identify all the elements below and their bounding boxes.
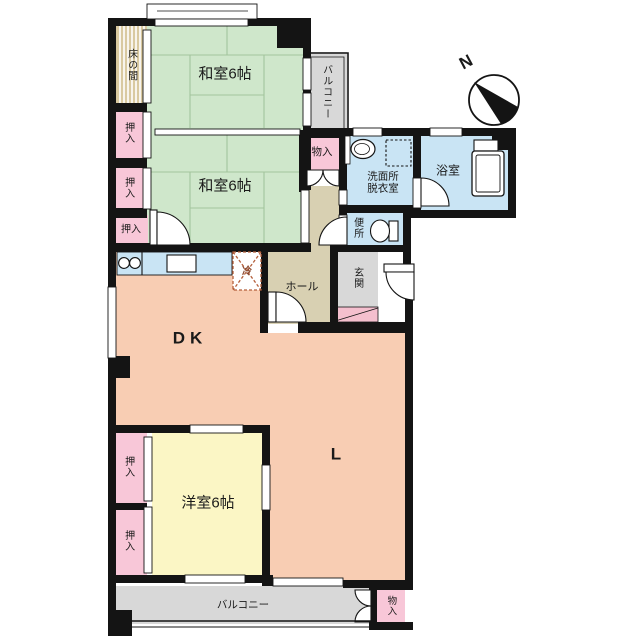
yoshitsu-label: 洋室6帖 [181, 496, 234, 513]
vanity-counter-icon [345, 136, 350, 164]
hall-label: ホール [286, 281, 319, 293]
entrance-door-leaf [384, 264, 414, 272]
fusuma-washitsu-hall [301, 190, 309, 243]
burner-icon [119, 258, 130, 269]
kitchen-sink-icon [167, 255, 196, 272]
entrance-door [386, 272, 414, 300]
tokonoma-label: 床の間 [125, 49, 136, 82]
storage-top-door-left [307, 170, 323, 186]
washitsu-lower-label: 和室6帖 [198, 179, 251, 196]
door-leaf [150, 210, 157, 245]
dk-label: DK [173, 328, 208, 347]
closet-1-label: 押入 [122, 122, 133, 144]
floor-plan-page: 床の間 押入 押入 押入 和室6帖 和室6帖 バルコニー 物入 洗面所 脱衣室 … [0, 0, 640, 640]
bathroom-label: 浴室 [436, 164, 460, 177]
burner-icon [130, 258, 141, 269]
toilet-label: 便所 [351, 217, 362, 239]
fusuma-between-washitsu [155, 129, 300, 135]
toilet-icon [371, 220, 399, 242]
storage-bottom-label: 物入 [385, 596, 396, 617]
dk-window [108, 287, 116, 358]
storage-top-door-right [323, 170, 339, 186]
washitsu-upper-label: 和室6帖 [198, 67, 251, 84]
compass [469, 75, 519, 125]
washroom-label: 洗面所 脱衣室 [367, 171, 399, 195]
balcony-top-label: バルコニー [320, 65, 331, 120]
closet-3-label: 押入 [121, 224, 141, 235]
yoshitsu-window [185, 575, 245, 583]
balcony-bottom-label: バルコニー [217, 600, 269, 612]
door-leaf [268, 292, 276, 322]
storage-top-label: 物入 [312, 147, 333, 159]
living-label: L [331, 444, 341, 463]
closet-2-label: 押入 [122, 177, 133, 199]
refrigerator-label: 冷 [242, 266, 252, 277]
living-window [273, 578, 343, 586]
bay-window [147, 4, 257, 19]
closet-5-label: 押入 [122, 530, 133, 552]
genkan-label: 玄関 [351, 267, 362, 289]
closet-4-label: 押入 [122, 456, 133, 478]
